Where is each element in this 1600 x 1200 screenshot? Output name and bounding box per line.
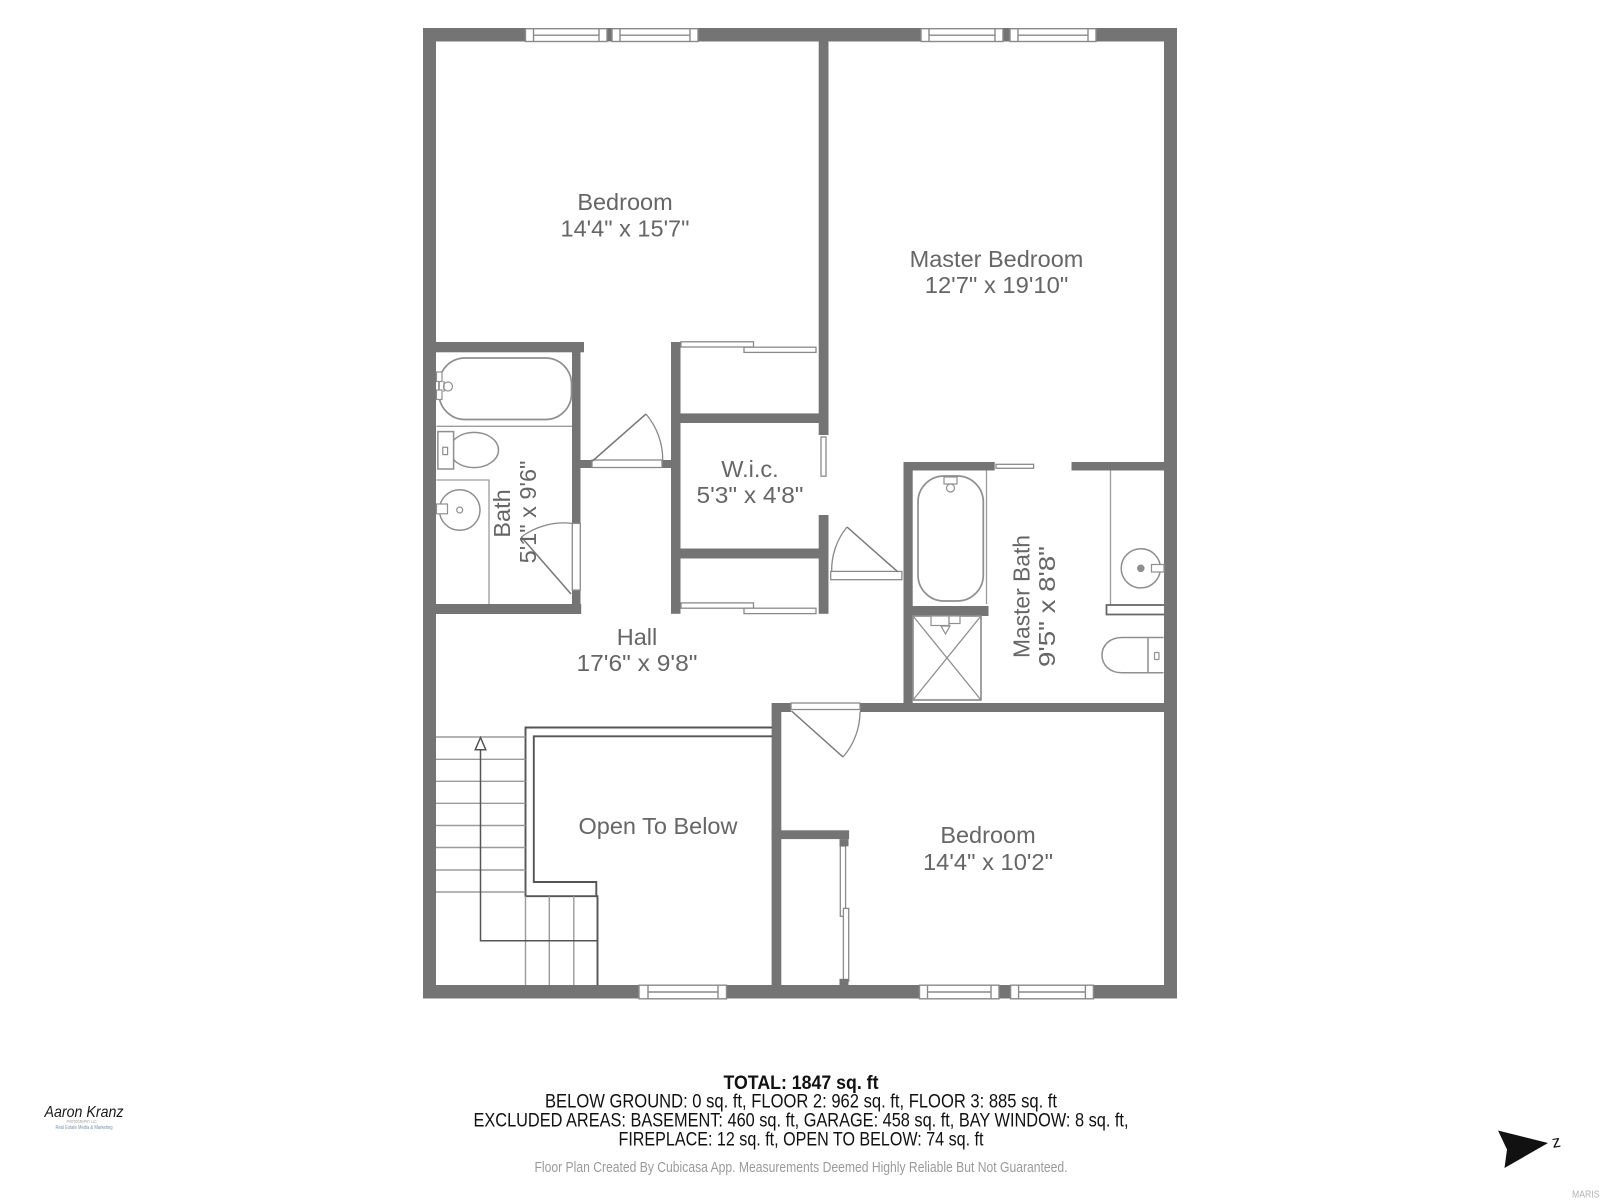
svg-text:Bedroom: Bedroom [940,822,1035,848]
svg-text:Real Estate Media & Marketing: Real Estate Media & Marketing [56,1125,113,1131]
svg-text:Master Bath: Master Bath [1009,535,1035,658]
svg-text:BELOW GROUND: 0 sq. ft, FLOOR: BELOW GROUND: 0 sq. ft, FLOOR 2: 962 sq.… [545,1092,1058,1113]
svg-text:5'1" x 9'6": 5'1" x 9'6" [515,461,541,564]
svg-text:FIREPLACE: 12 sq. ft, OPEN TO: FIREPLACE: 12 sq. ft, OPEN TO BELOW: 74 … [619,1130,985,1151]
svg-text:Floor Plan Created By Cubicasa: Floor Plan Created By Cubicasa App. Meas… [535,1159,1068,1176]
svg-text:EXCLUDED AREAS: BASEMENT: 460: EXCLUDED AREAS: BASEMENT: 460 sq. ft, GA… [474,1111,1129,1132]
svg-text:W.i.c.: W.i.c. [721,456,778,482]
svg-text:5'3" x 4'8": 5'3" x 4'8" [697,482,804,508]
svg-text:9'5" x 8'8": 9'5" x 8'8" [1034,546,1060,667]
svg-text:14'4" x 15'7": 14'4" x 15'7" [561,216,690,242]
svg-text:PHOTOGRAPHY LLC: PHOTOGRAPHY LLC [67,1119,97,1124]
svg-text:12'7" x 19'10": 12'7" x 19'10" [925,272,1069,298]
svg-text:Bath: Bath [489,489,515,537]
svg-text:Hall: Hall [617,624,657,650]
svg-text:MARIS: MARIS [1572,1189,1600,1200]
svg-text:Open To Below: Open To Below [579,813,739,839]
svg-text:Master Bedroom: Master Bedroom [910,246,1084,272]
svg-text:14'4" x 10'2": 14'4" x 10'2" [923,849,1053,875]
svg-text:17'6" x 9'8": 17'6" x 9'8" [577,650,698,676]
svg-text:Bedroom: Bedroom [577,189,672,215]
